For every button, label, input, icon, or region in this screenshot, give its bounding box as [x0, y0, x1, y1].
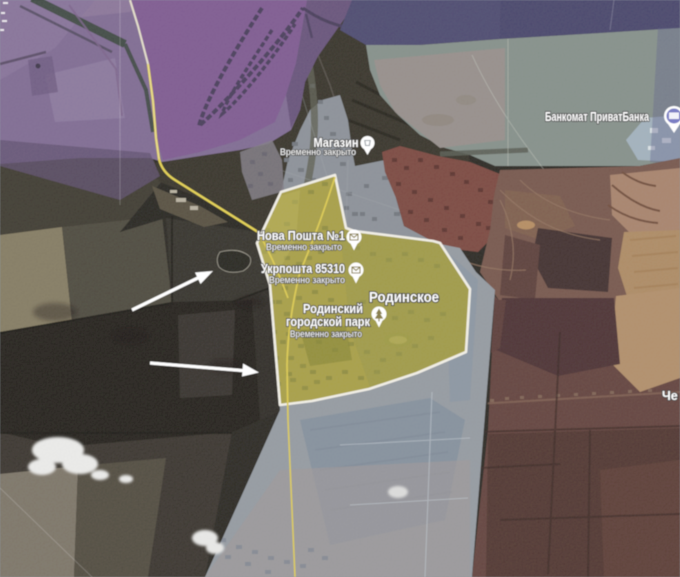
- svg-text:Временно закрыто: Временно закрыто: [280, 147, 356, 158]
- svg-text:Временно закрыто: Временно закрыто: [269, 275, 345, 286]
- svg-text:городской парк: городской парк: [286, 315, 371, 329]
- svg-text:Че: Че: [662, 389, 678, 403]
- svg-text:Банкомат ПриватБанка: Банкомат ПриватБанка: [545, 110, 650, 124]
- svg-text:Временно закрыто: Временно закрыто: [290, 329, 362, 340]
- svg-text:Укрпошта 85310: Укрпошта 85310: [261, 262, 345, 276]
- svg-text:Родинский: Родинский: [303, 302, 363, 316]
- svg-text:Нова Пошта №1: Нова Пошта №1: [257, 229, 345, 243]
- svg-text:Временно закрыто: Временно закрыто: [266, 242, 342, 253]
- svg-text:Родинское: Родинское: [369, 290, 439, 306]
